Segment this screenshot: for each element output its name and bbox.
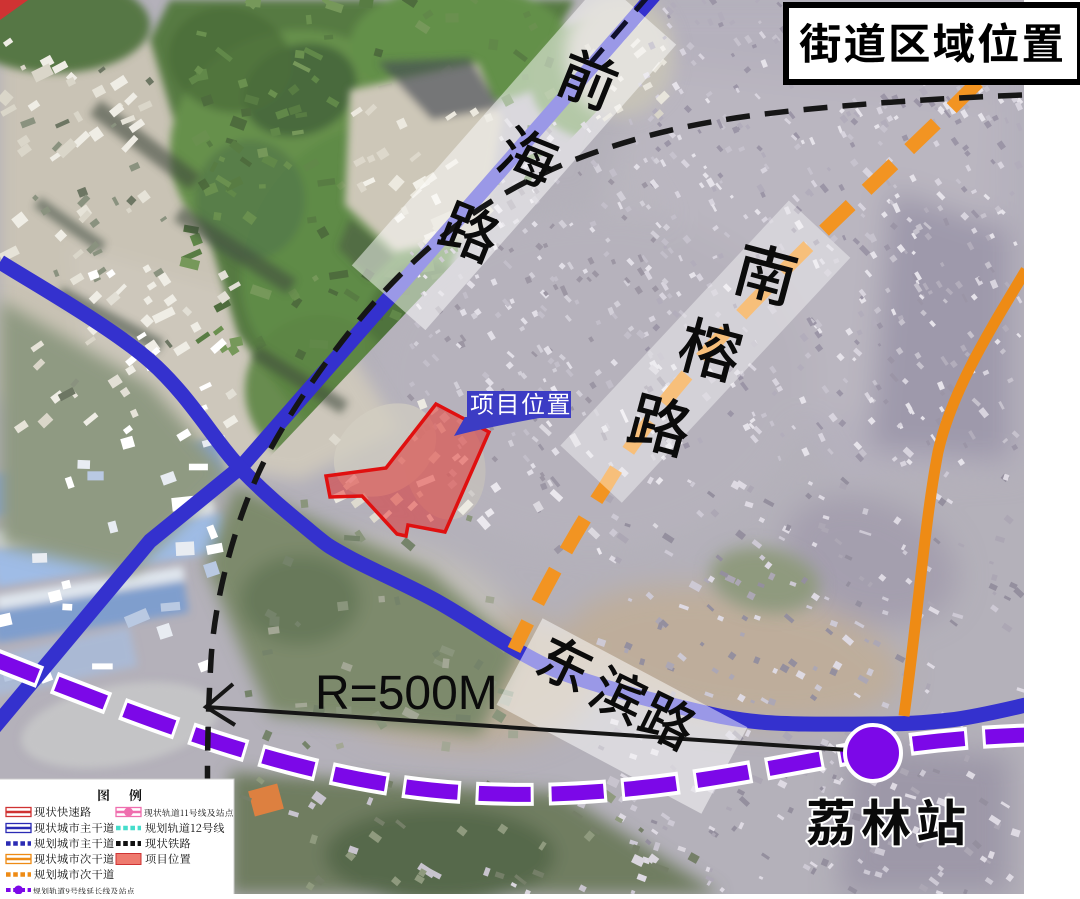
svg-text:R=500M: R=500M — [315, 667, 498, 720]
